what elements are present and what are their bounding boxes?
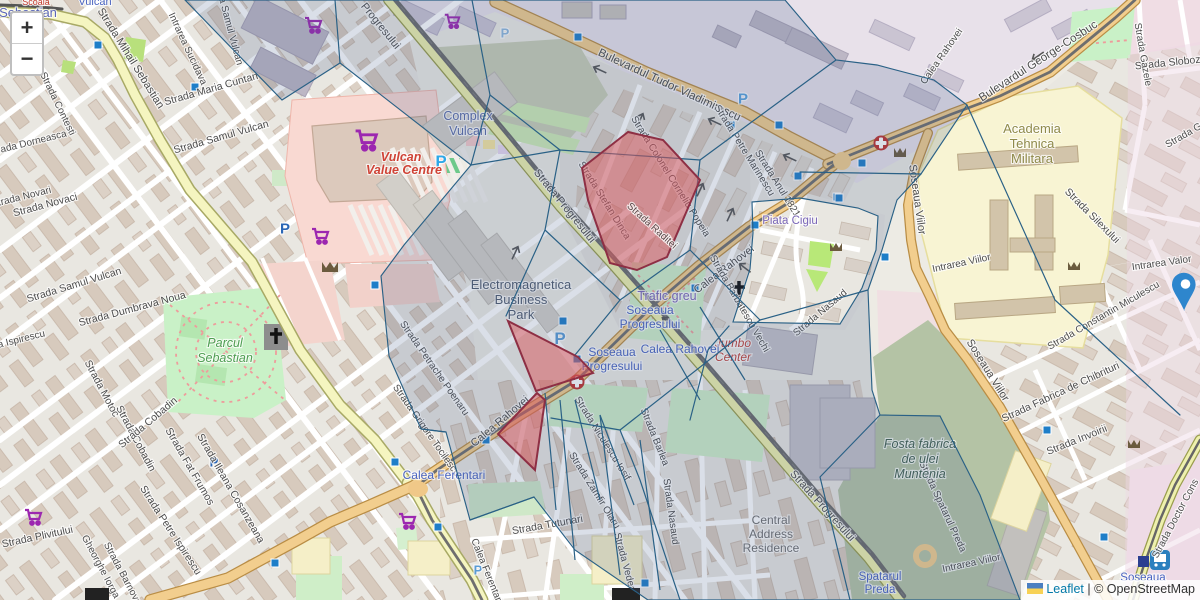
- svg-text:Vulcan: Vulcan: [381, 150, 422, 164]
- svg-text:Academia: Academia: [1003, 121, 1062, 136]
- svg-text:Value Centre: Value Centre: [366, 163, 442, 177]
- svg-text:Sebastian: Sebastian: [197, 351, 253, 365]
- svg-text:P: P: [280, 220, 290, 237]
- svg-text:Militara: Militara: [1011, 151, 1054, 166]
- svg-text:Tehnica: Tehnica: [1010, 136, 1056, 151]
- svg-text:Parcul: Parcul: [207, 336, 244, 350]
- svg-text:Vulcan: Vulcan: [78, 0, 111, 8]
- svg-text:Piata Cigiu: Piata Cigiu: [762, 215, 818, 227]
- svg-text:Scoala: Scoala: [22, 0, 50, 7]
